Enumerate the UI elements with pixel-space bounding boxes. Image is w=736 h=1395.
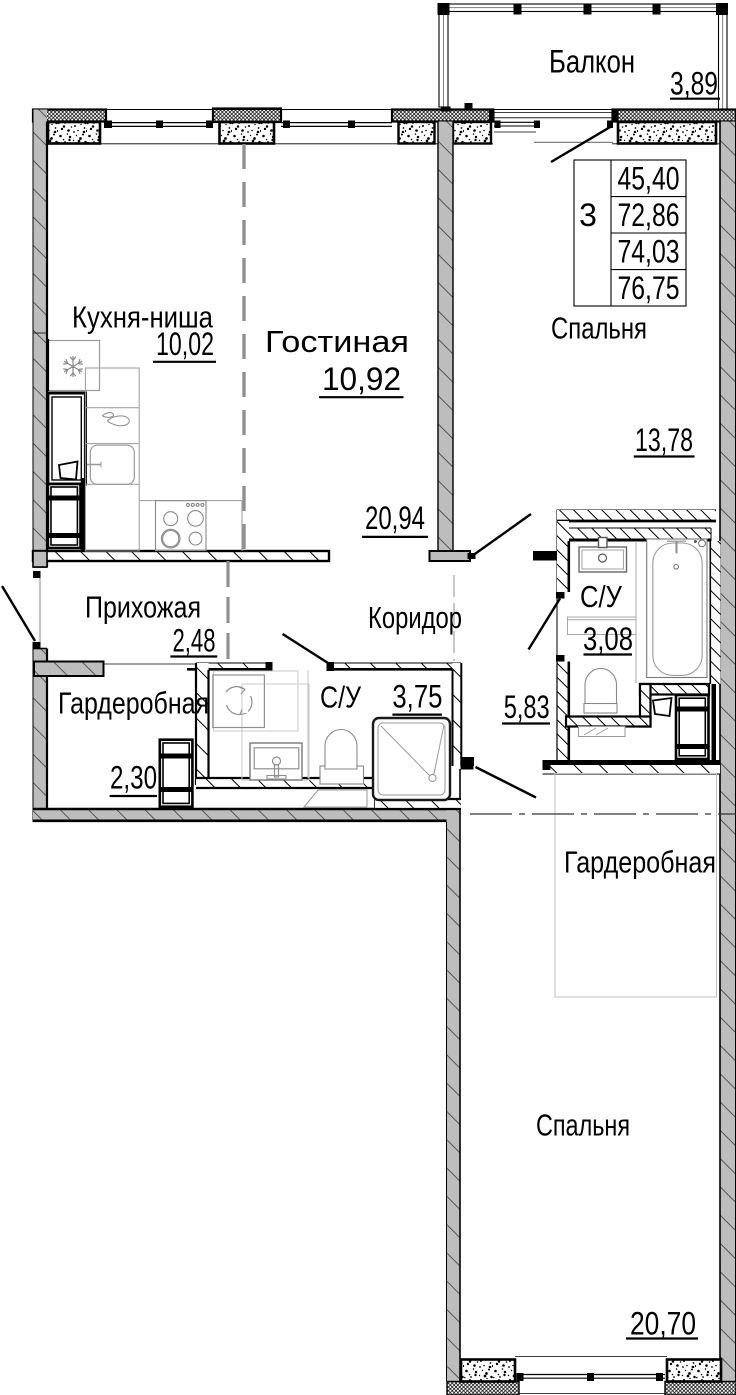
svg-text:72,86: 72,86 bbox=[618, 197, 680, 233]
svg-text:3,89: 3,89 bbox=[670, 66, 718, 102]
svg-text:45,40: 45,40 bbox=[618, 161, 680, 197]
svg-text:Спальня: Спальня bbox=[551, 311, 647, 346]
svg-text:Спальня: Спальня bbox=[536, 1108, 630, 1143]
svg-text:10,02: 10,02 bbox=[156, 326, 214, 362]
svg-text:76,75: 76,75 bbox=[618, 270, 680, 306]
svg-text:20,70: 20,70 bbox=[630, 1306, 696, 1342]
svg-text:Балкон: Балкон bbox=[549, 44, 635, 80]
svg-text:С/У: С/У bbox=[320, 680, 361, 715]
svg-text:Гардеробная: Гардеробная bbox=[564, 845, 716, 880]
svg-text:20,94: 20,94 bbox=[365, 500, 425, 536]
svg-text:3: 3 bbox=[579, 197, 597, 233]
svg-text:Гостиная: Гостиная bbox=[265, 324, 409, 359]
svg-text:13,78: 13,78 bbox=[635, 422, 693, 458]
svg-text:Гардеробная: Гардеробная bbox=[58, 686, 209, 721]
svg-text:5,83: 5,83 bbox=[504, 689, 550, 725]
svg-text:3,75: 3,75 bbox=[392, 679, 442, 715]
svg-text:3,08: 3,08 bbox=[583, 621, 633, 657]
svg-text:Коридор: Коридор bbox=[368, 600, 462, 635]
svg-text:2,48: 2,48 bbox=[173, 623, 216, 659]
svg-text:Прихожая: Прихожая bbox=[85, 590, 201, 625]
svg-text:10,92: 10,92 bbox=[322, 361, 401, 397]
svg-text:74,03: 74,03 bbox=[618, 234, 680, 270]
svg-text:С/У: С/У bbox=[580, 579, 622, 614]
svg-text:2,30: 2,30 bbox=[110, 760, 157, 796]
